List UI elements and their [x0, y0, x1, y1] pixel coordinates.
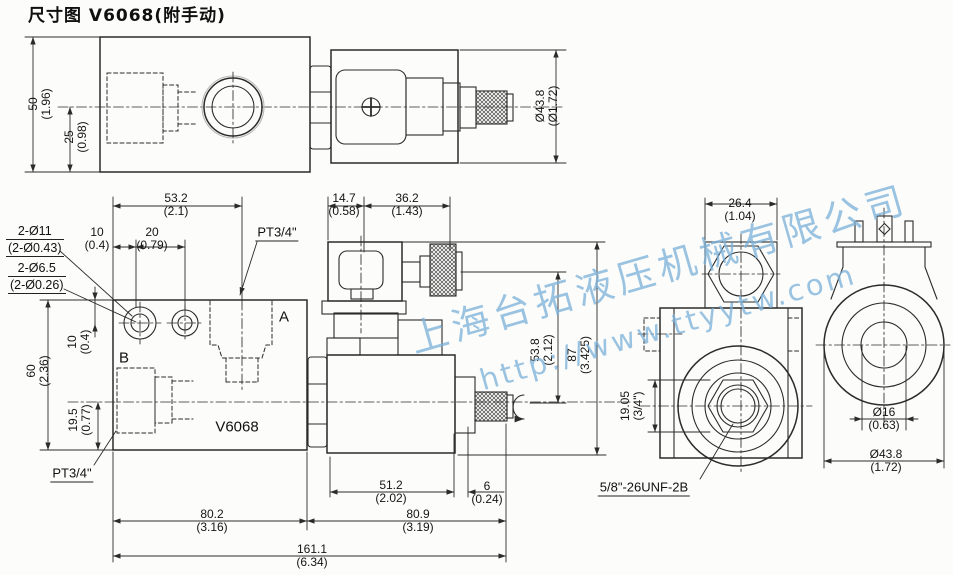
dim-width-20: 20(0.79) [136, 226, 167, 252]
dim-width-36-2: 36.2(1.43) [391, 192, 422, 218]
dim-width-10: 10(0.4) [85, 226, 110, 252]
dim-height-19-05: 19.05(3/4") [619, 391, 645, 421]
dim-width-161-1: 161.1(6.34) [296, 543, 327, 569]
label-pt34-bottom: PT3/4" [50, 465, 93, 482]
label-port-a: A [279, 309, 289, 326]
label-thread-unf: 5/8"-26UNF-2B [598, 479, 690, 496]
callout-holes-large: 2-Ø11 (2-Ø0.43) [6, 223, 64, 257]
page-title: 尺寸图 V6068(附手动) [28, 5, 226, 27]
dim-width-14-7: 14.7(0.58) [328, 192, 359, 218]
dim-dia-16: Ø16(0.63) [868, 406, 899, 432]
dim-width-26-4: 26.4(1.04) [724, 197, 755, 223]
dim-height-50: 50(1.96) [27, 88, 53, 119]
dim-width-80-2: 80.2(3.16) [196, 508, 227, 534]
dim-height-60: 60(2.36) [25, 355, 51, 386]
dim-height-87: 87(3.425) [566, 336, 592, 374]
top-view [25, 37, 566, 172]
label-port-b: B [119, 350, 129, 367]
dimension-drawing-page: 尺寸图 V6068(附手动) 50(1.96) 25(0.98) Ø43.8(Ø… [0, 0, 953, 575]
dim-height-19-5: 19.5(0.77) [67, 404, 93, 435]
label-model-v6068: V6068 [215, 419, 258, 436]
dim-height-53-8: 53.8(2.12) [529, 334, 555, 365]
dim-height-10: 10(0.4) [66, 330, 92, 355]
dim-dia-43-8-right: Ø43.8(1.72) [870, 448, 903, 474]
end-view [638, 198, 812, 479]
callout-holes-small: 2-Ø6.5 (2-Ø0.26) [8, 260, 66, 294]
dim-width-80-9: 80.9(3.19) [402, 508, 433, 534]
dim-width-53-2: 53.2(2.1) [164, 192, 189, 218]
dim-width-6: 6(0.24) [471, 480, 502, 506]
front-view [40, 197, 630, 562]
dim-width-51-2: 51.2(2.02) [375, 479, 406, 505]
label-pt34-top: PT3/4" [255, 224, 298, 241]
dim-dia-43-8-top: Ø43.8(Ø1.72) [534, 86, 560, 127]
dim-height-25: 25(0.98) [63, 121, 89, 152]
